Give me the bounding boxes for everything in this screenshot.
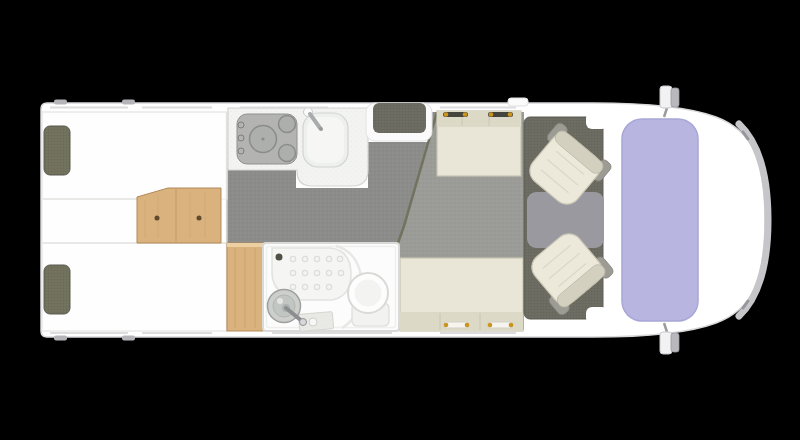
seatbelt-dot-icon — [444, 112, 449, 117]
drawer-handle-icon — [197, 216, 202, 221]
bed-step-unit — [137, 188, 221, 243]
hob-knob-icon — [238, 122, 244, 128]
kitchen-hob — [237, 114, 297, 164]
dash-tab-bottom — [586, 307, 608, 324]
bench-top — [437, 111, 521, 176]
seatbelt-dot-icon — [509, 323, 514, 328]
toilet — [348, 273, 389, 326]
tap-tip — [319, 127, 323, 131]
toilet-seat — [355, 280, 382, 307]
seatbelt-dot-icon — [463, 112, 468, 117]
entry-mat-texture — [373, 103, 426, 133]
soap-dish-icon — [309, 318, 317, 326]
windshield — [622, 119, 698, 321]
burner-small-icon — [279, 145, 296, 162]
dash-tab-top — [586, 112, 608, 129]
basin-highlight — [277, 298, 283, 304]
floorplan-drawing — [0, 0, 800, 440]
seatbelt-dot-icon — [488, 323, 493, 328]
wardrobe — [227, 243, 263, 331]
seatbelt-dot-icon — [465, 323, 470, 328]
bedroom — [42, 112, 227, 331]
roof-vent-tab — [508, 98, 528, 106]
bench-bottom — [400, 258, 523, 331]
hob-knob-icon — [238, 135, 244, 141]
pillow-top — [44, 126, 70, 175]
seatbelt-dot-icon — [444, 323, 449, 328]
shower-drain-icon — [276, 254, 283, 261]
pillow-bottom — [44, 265, 70, 314]
entry-step — [366, 103, 432, 141]
seatbelt-dot-icon — [489, 112, 494, 117]
motorhome-floorplan — [0, 0, 800, 440]
burner-small-icon — [279, 116, 296, 133]
tap-handle-icon — [300, 319, 307, 326]
bathroom — [263, 243, 399, 331]
kitchen-sink — [303, 108, 348, 168]
seatbelt-dot-icon — [508, 112, 513, 117]
drawer-handle-icon — [155, 216, 160, 221]
burner-center — [261, 137, 264, 140]
hob-knob-icon — [238, 148, 244, 154]
